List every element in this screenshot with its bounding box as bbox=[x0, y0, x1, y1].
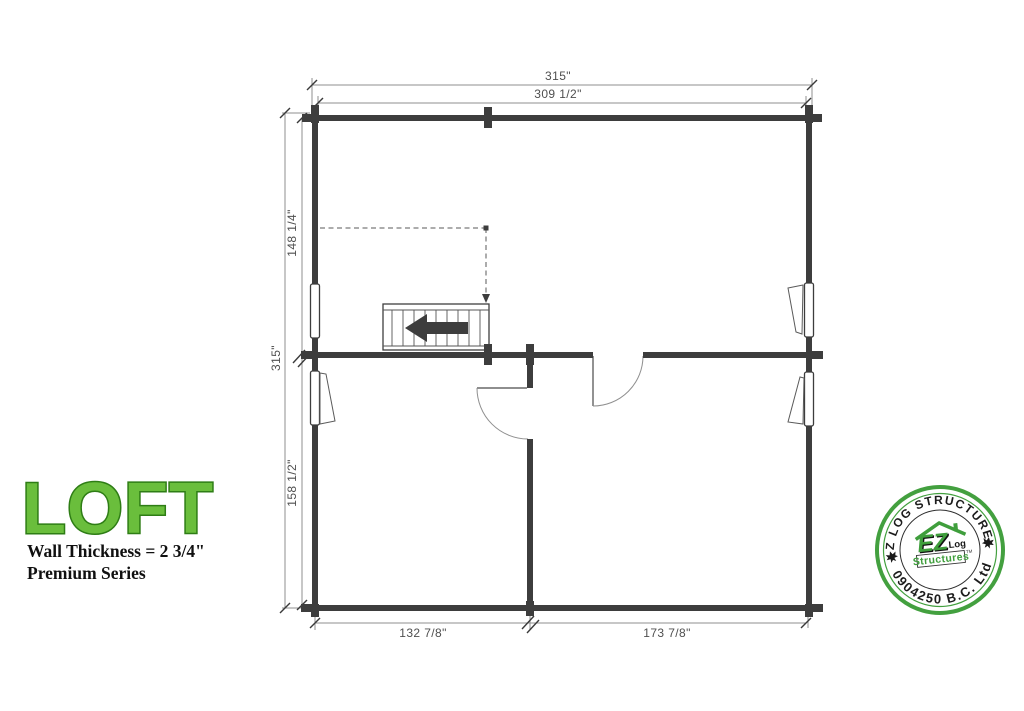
dim-top-inner: 309 1/2" bbox=[534, 87, 582, 101]
loft-opening-dashed-guide bbox=[320, 226, 490, 304]
dim-loft-depth: 148 1/4" bbox=[285, 209, 299, 257]
wall-interior-lower-segment bbox=[527, 439, 533, 605]
wall-middle-left-segment bbox=[312, 352, 593, 358]
window-right-lower-swing bbox=[788, 377, 804, 424]
wall-right bbox=[806, 115, 812, 611]
window-right-upper-swing bbox=[788, 285, 803, 334]
window-right-upper bbox=[805, 283, 814, 337]
wall-bottom bbox=[312, 605, 812, 611]
door-swing-arc bbox=[477, 388, 528, 439]
walls bbox=[312, 115, 812, 611]
door-interior-wall bbox=[477, 388, 528, 439]
window-right-lower bbox=[805, 372, 814, 426]
page-title: LOFT bbox=[22, 469, 214, 549]
maple-leaf-icon-left bbox=[884, 549, 899, 564]
dim-top-overall: 315" bbox=[545, 69, 571, 83]
chimney-icon bbox=[953, 523, 958, 531]
door-middle-wall bbox=[593, 356, 643, 406]
dim-left-overall: 315" bbox=[269, 345, 283, 371]
guide-arrowhead bbox=[482, 294, 490, 303]
wall-thickness-note: Wall Thickness = 2 3/4" bbox=[27, 541, 205, 561]
dim-bottom-left-room: 132 7/8" bbox=[399, 626, 447, 640]
floor-plan-drawing: 315" 309 1/2" 315" 148 1/4" 158 1/2" 132… bbox=[0, 0, 1024, 711]
guide-node-dot bbox=[484, 226, 489, 231]
company-logo-stamp: EZ LOG STRUCTURES 0904250 B.C. Ltd EZ EZ… bbox=[858, 464, 1009, 621]
title-block: LOFT Wall Thickness = 2 3/4" Premium Ser… bbox=[22, 469, 214, 583]
log-crossing-posts bbox=[301, 105, 823, 617]
wall-middle-right-segment bbox=[643, 352, 812, 358]
wall-left bbox=[312, 115, 318, 611]
dim-lower-depth: 158 1/2" bbox=[285, 459, 299, 507]
stamp-trademark: TM bbox=[966, 549, 973, 555]
window-left-upper bbox=[311, 284, 320, 338]
door-swing-arc bbox=[593, 356, 643, 406]
series-note: Premium Series bbox=[27, 563, 146, 583]
window-left-lower bbox=[311, 371, 320, 425]
staircase bbox=[383, 304, 489, 350]
window-left-lower-swing bbox=[320, 373, 335, 424]
floor-plan-page: 315" 309 1/2" 315" 148 1/4" 158 1/2" 132… bbox=[0, 0, 1024, 711]
wall-top bbox=[312, 115, 812, 121]
stamp-log: Log bbox=[948, 538, 967, 551]
dim-bottom-right-room: 173 7/8" bbox=[643, 626, 691, 640]
